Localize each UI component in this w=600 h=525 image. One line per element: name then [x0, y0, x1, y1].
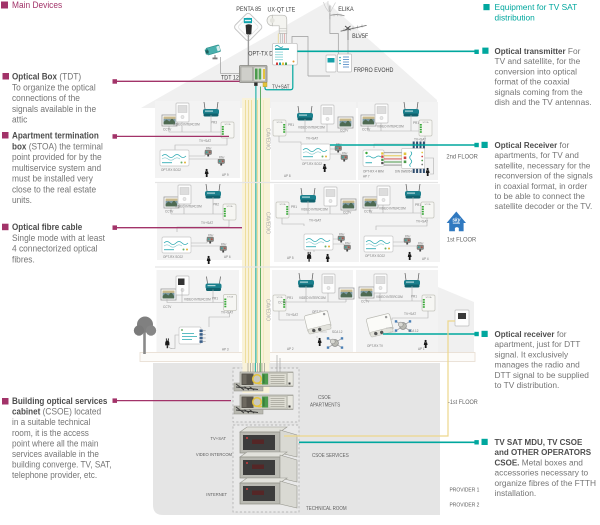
svg-text:installation.: installation. [495, 488, 537, 498]
svg-text:CCTV: CCTV [163, 305, 172, 309]
svg-text:point where all the main: point where all the main [12, 438, 98, 448]
svg-text:services available in the: services available in the [12, 449, 99, 459]
svg-text:point provided for by the: point provided for by the [12, 152, 102, 162]
svg-text:satellite, necessary for the: satellite, necessary for the [495, 160, 591, 170]
svg-text:PR1: PR1 [291, 205, 297, 209]
svg-text:for: for [557, 140, 569, 150]
svg-text:CAVEDIO: CAVEDIO [265, 128, 271, 150]
svg-text:to TV distribution.: to TV distribution. [495, 380, 560, 390]
svg-text:1st FLOOR: 1st FLOOR [447, 237, 477, 244]
svg-text:CCTV: CCTV [278, 301, 287, 305]
svg-text:units.: units. [12, 195, 32, 205]
svg-text:conversion into optical: conversion into optical [495, 66, 578, 76]
svg-text:and OTHER OPERATORS: and OTHER OPERATORS [495, 447, 592, 457]
svg-text:PENTA 85: PENTA 85 [236, 7, 261, 13]
svg-text:PAU: PAU [339, 232, 344, 236]
svg-text:PAU: PAU [221, 242, 226, 246]
svg-text:Optical transmitter: Optical transmitter [495, 46, 567, 56]
svg-text:room, it is the access: room, it is the access [12, 428, 89, 438]
svg-text:TV+SAT: TV+SAT [404, 312, 417, 316]
svg-text:OPT-RX 4 MIM: OPT-RX 4 MIM [363, 170, 384, 174]
svg-text:UX-QT LTE: UX-QT LTE [268, 8, 296, 14]
svg-text:Optical fibre cable: Optical fibre cable [12, 222, 82, 232]
svg-text:CSOE: CSOE [318, 395, 331, 401]
svg-text:TV+SAT: TV+SAT [221, 311, 234, 315]
svg-text:satellite decoder or the TV.: satellite decoder or the TV. [495, 201, 593, 211]
svg-text:TV+SAT: TV+SAT [309, 219, 322, 223]
svg-text:AP 9: AP 9 [222, 173, 229, 177]
svg-text:VIDEO INTERCOM: VIDEO INTERCOM [184, 298, 211, 302]
svg-text:in a suitable technical: in a suitable technical [12, 417, 90, 427]
svg-text:Optical receiver: Optical receiver [495, 329, 556, 339]
svg-text:TDT 12: TDT 12 [221, 75, 239, 81]
svg-text:To organize the optical: To organize the optical [12, 82, 96, 92]
svg-text:2nd FLOOR: 2nd FLOOR [446, 154, 478, 161]
svg-text:reconversion of the signals: reconversion of the signals [495, 171, 593, 181]
svg-text:signals available in the: signals available in the [12, 104, 96, 114]
svg-text:AP 1: AP 1 [418, 347, 425, 351]
svg-text:PR1: PR1 [288, 123, 294, 127]
svg-text:OPT-RX SC02: OPT-RX SC02 [302, 162, 322, 166]
svg-text:SCA 12: SCA 12 [408, 329, 419, 333]
svg-text:Metal boxes and: Metal boxes and [519, 457, 583, 467]
svg-text:dish and the TV antennas.: dish and the TV antennas. [495, 97, 592, 107]
svg-text:accessories necessary to: accessories necessary to [495, 468, 589, 478]
svg-text:PAU: PAU [206, 146, 211, 150]
svg-text:OPT-RX SC02: OPT-RX SC02 [163, 255, 183, 259]
svg-text:INTERNET: INTERNET [206, 492, 227, 497]
svg-text:Building optical services: Building optical services [12, 396, 107, 406]
svg-text:distribution: distribution [495, 12, 536, 22]
svg-text:PAU: PAU [208, 233, 213, 237]
svg-text:for: for [555, 329, 567, 339]
svg-text:close to the real estate: close to the real estate [12, 184, 96, 194]
svg-text:manages the radio and: manages the radio and [495, 360, 581, 370]
svg-text:attic: attic [12, 115, 28, 125]
svg-text:AP 7: AP 7 [363, 175, 370, 179]
svg-text:PAU: PAU [418, 241, 423, 245]
svg-text:must be installed very: must be installed very [12, 174, 93, 184]
svg-text:ELIKA: ELIKA [338, 7, 353, 13]
svg-text:PR1: PR1 [415, 203, 421, 207]
svg-text:VIDEO INTERCOM: VIDEO INTERCOM [175, 205, 202, 209]
svg-text:TV+SAT: TV+SAT [272, 84, 290, 90]
svg-text:OPT-RX TV: OPT-RX TV [367, 344, 384, 348]
svg-text:PAU: PAU [345, 241, 350, 245]
svg-text:PR1: PR1 [413, 121, 419, 125]
svg-text:Single mode with at least: Single mode with at least [12, 233, 105, 243]
svg-text:VIDEO INTERCOM: VIDEO INTERCOM [301, 208, 328, 212]
svg-text:TV+SAT: TV+SAT [211, 436, 227, 441]
svg-text:Apartment termination: Apartment termination [12, 131, 99, 141]
svg-text:OPT-RX SC02: OPT-RX SC02 [365, 254, 385, 258]
svg-text:CAVEDIO: CAVEDIO [265, 299, 271, 321]
svg-text:connections of the: connections of the [12, 93, 80, 103]
svg-text:For: For [566, 46, 581, 56]
svg-text:apartments, for TV and: apartments, for TV and [495, 150, 580, 160]
svg-text:VIDEO INTERCOM: VIDEO INTERCOM [298, 126, 325, 130]
svg-text:DTT signal to be supplied: DTT signal to be supplied [495, 370, 590, 380]
svg-text:PR1: PR1 [287, 296, 293, 300]
svg-text:PR2: PR2 [213, 203, 219, 207]
svg-text:VIDEO INTERCOM: VIDEO INTERCOM [299, 296, 326, 300]
svg-text:to be able to connect the: to be able to connect the [495, 191, 586, 201]
svg-text:CAVEDIO: CAVEDIO [265, 212, 271, 234]
svg-text:CSOE.: CSOE. [495, 457, 520, 467]
svg-text:Main Devices: Main Devices [12, 0, 63, 10]
svg-text:CCTV: CCTV [163, 128, 172, 132]
svg-text:DIN SW8054: DIN SW8054 [395, 170, 412, 174]
svg-text:-1st FLOOR: -1st FLOOR [448, 400, 478, 406]
svg-text:telephone provider, etc.: telephone provider, etc. [12, 470, 97, 480]
svg-text:TV+SAT: TV+SAT [201, 221, 214, 225]
svg-text:fibres.: fibres. [12, 254, 35, 264]
svg-text:in coaxial format, in order: in coaxial format, in order [495, 181, 588, 191]
svg-text:(STOA) the terminal: (STOA) the terminal [26, 141, 103, 151]
svg-text:OPT-RX SC02: OPT-RX SC02 [161, 168, 181, 172]
svg-text:TV+SAT: TV+SAT [286, 313, 299, 317]
svg-text:4 connectorized optical: 4 connectorized optical [12, 244, 98, 254]
svg-text:TV SAT MDU, TV CSOE: TV SAT MDU, TV CSOE [495, 437, 583, 447]
svg-text:box: box [12, 141, 26, 151]
svg-text:CSOE SERVICES: CSOE SERVICES [312, 453, 349, 459]
svg-text:PR3: PR3 [211, 121, 217, 125]
svg-text:Optical Receiver: Optical Receiver [495, 140, 558, 150]
svg-text:PAU: PAU [219, 155, 224, 159]
svg-text:TECHNICAL ROOM: TECHNICAL ROOM [306, 506, 347, 512]
svg-text:signals coming from the: signals coming from the [495, 87, 583, 97]
svg-text:CCTV: CCTV [165, 210, 174, 214]
svg-text:APARTMENTS: APARTMENTS [310, 403, 341, 409]
svg-text:apartment, just for DTT: apartment, just for DTT [495, 339, 582, 349]
svg-text:(CSOE) located: (CSOE) located [40, 407, 101, 417]
svg-text:Optical Box: Optical Box [12, 72, 57, 82]
svg-text:organize fibres of the FTTH: organize fibres of the FTTH [495, 478, 597, 488]
svg-text:AP 5: AP 5 [287, 256, 294, 260]
svg-text:multiservice system and: multiservice system and [12, 163, 101, 173]
svg-text:Equipment for TV SAT: Equipment for TV SAT [495, 2, 578, 12]
svg-text:PROVIDER 1: PROVIDER 1 [450, 488, 480, 494]
svg-text:cabinet: cabinet [12, 407, 40, 417]
svg-text:CCTV: CCTV [361, 300, 370, 304]
svg-text:FRPRO EVOHD: FRPRO EVOHD [354, 68, 394, 74]
svg-text:AP 2: AP 2 [287, 347, 294, 351]
svg-text:VIDEO INTERCOM: VIDEO INTERCOM [173, 123, 200, 127]
svg-text:AP 8: AP 8 [284, 174, 291, 178]
svg-text:TV+SAT: TV+SAT [199, 139, 212, 143]
svg-text:TV+SAT: TV+SAT [306, 137, 319, 141]
svg-text:AP 4: AP 4 [422, 257, 429, 261]
svg-text:TV and satellite, for the: TV and satellite, for the [495, 56, 581, 66]
svg-text:AP 6: AP 6 [224, 255, 231, 259]
svg-text:BLV5F: BLV5F [352, 34, 368, 40]
svg-text:format of the coaxial: format of the coaxial [495, 77, 570, 87]
svg-text:VIDEO INTERCOM: VIDEO INTERCOM [196, 452, 232, 457]
svg-text:signal. It exclusively: signal. It exclusively [495, 349, 569, 359]
svg-text:building converge. TV, SAT,: building converge. TV, SAT, [12, 460, 112, 470]
svg-text:AP 3: AP 3 [222, 348, 229, 352]
svg-text:PAU: PAU [342, 151, 347, 155]
svg-text:SCA 12: SCA 12 [332, 330, 343, 334]
svg-text:(TDT): (TDT) [57, 72, 81, 82]
svg-text:PROVIDER 2: PROVIDER 2 [450, 503, 480, 509]
svg-text:PAU: PAU [405, 234, 410, 238]
